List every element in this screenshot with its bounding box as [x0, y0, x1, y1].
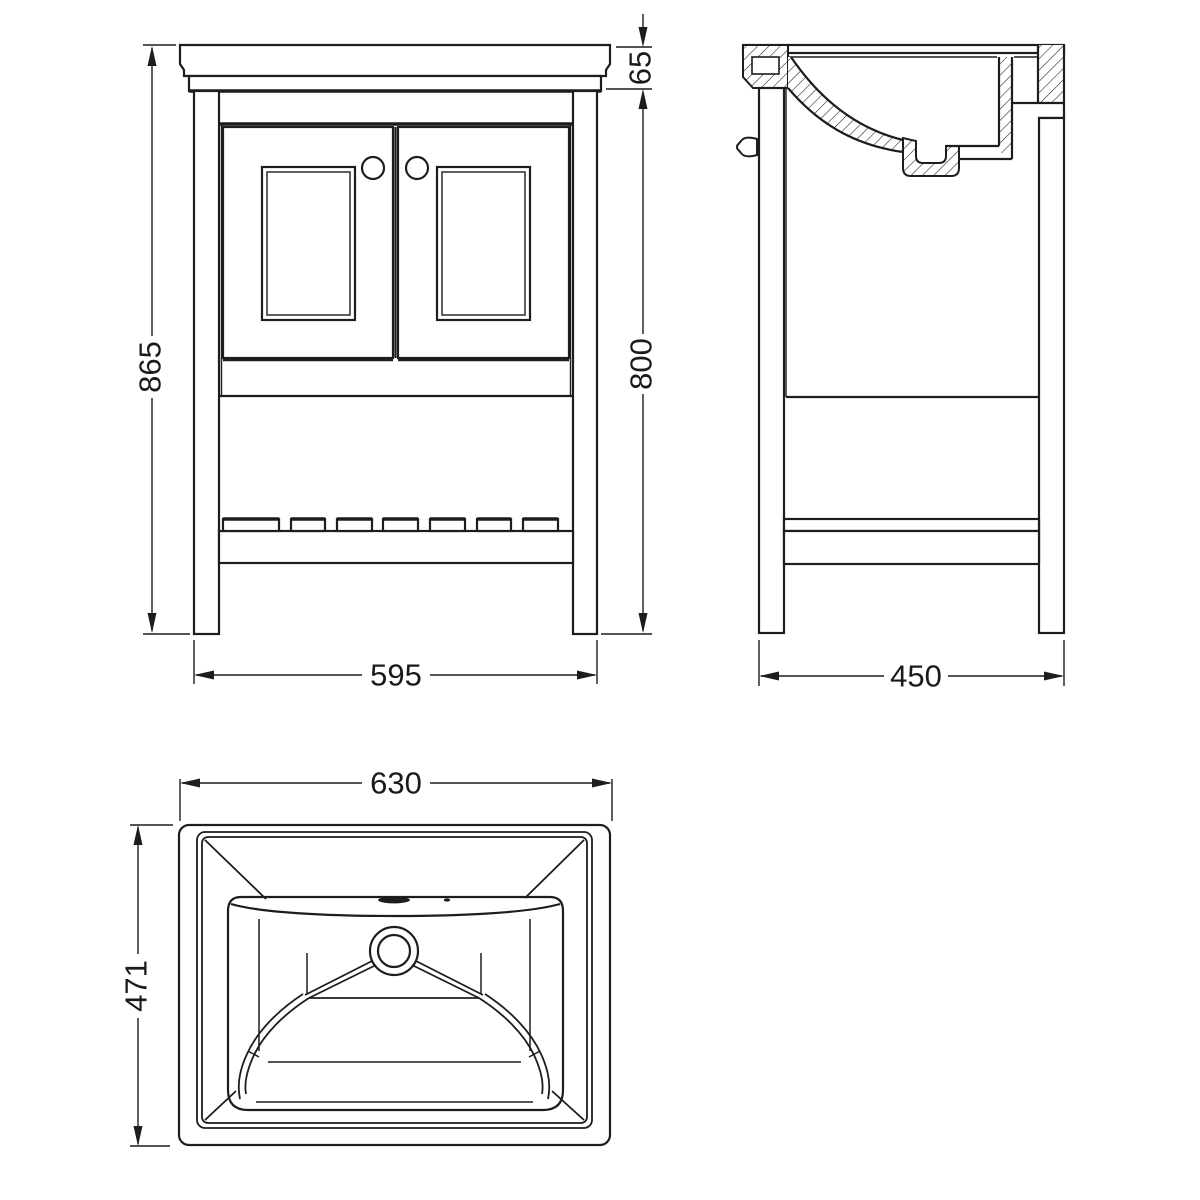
shelf-rail — [219, 531, 573, 563]
dim-label-865: 865 — [133, 341, 168, 393]
rim-marking-dot — [444, 898, 450, 901]
dim-label-471: 471 — [119, 960, 154, 1012]
arrowhead-left — [194, 671, 214, 680]
right-door-knob — [406, 157, 428, 179]
overflow-channel-section — [999, 57, 1012, 153]
side-back-leg — [1039, 118, 1064, 633]
side-shelf-slat — [784, 519, 1039, 531]
dim-label-630: 630 — [370, 766, 422, 801]
front-left-leg — [194, 91, 219, 634]
dim-total-height-865: 865 — [133, 45, 191, 634]
arrowhead-left — [759, 672, 779, 681]
basin-plan-view: 630 471 — [119, 766, 613, 1147]
dim-carcass-height-800: 800 — [601, 108, 659, 634]
dim-label-65: 65 — [623, 51, 658, 85]
front-elevation-view: 865 65 800 595 — [133, 14, 659, 693]
vanity-technical-drawing: 865 65 800 595 — [0, 0, 1200, 1200]
bowl-wall-section — [788, 57, 903, 152]
arrowhead-down — [148, 613, 157, 633]
overflow-slot — [378, 897, 410, 904]
dim-plan-depth-471: 471 — [119, 825, 174, 1146]
bowl-outline — [228, 897, 563, 1110]
arrowhead-up — [639, 89, 648, 109]
dim-label-450: 450 — [890, 659, 942, 694]
side-front-leg — [759, 88, 784, 633]
arrowhead-up — [148, 46, 157, 66]
dim-label-800: 800 — [624, 338, 659, 390]
drain-wall-section — [903, 138, 959, 176]
arrowhead-right — [577, 671, 597, 680]
worktop-slab — [180, 45, 610, 76]
side-section-view: 450 — [737, 45, 1064, 694]
arrowhead-down — [134, 1126, 143, 1146]
arrowhead-down — [639, 613, 648, 633]
side-shelf-rail — [784, 531, 1039, 564]
worktop-lip — [189, 76, 601, 91]
tap-hole-inner — [378, 935, 410, 967]
basin-top-slab — [743, 45, 1064, 53]
dim-label-595: 595 — [370, 658, 422, 693]
rim-corner-diagonals — [205, 840, 584, 1120]
dim-plan-width-630: 630 — [180, 766, 612, 822]
technical-drawing-page: 865 65 800 595 — [0, 0, 1200, 1200]
dim-worktop-height-65: 65 — [606, 14, 658, 109]
bowl-rim-front-edge — [231, 904, 560, 916]
arrowhead-left — [180, 779, 200, 788]
side-door-knob — [737, 138, 757, 157]
left-door-knob — [362, 157, 384, 179]
rear-rim-section — [1038, 45, 1064, 103]
basin-outer-edge — [179, 825, 610, 1145]
shelf-slats — [223, 519, 558, 531]
rim-fixing-notch — [752, 57, 779, 74]
front-right-leg — [573, 91, 597, 634]
dim-side-depth-450: 450 — [759, 640, 1064, 694]
arrowhead-right — [592, 779, 612, 788]
bowl-slope-curves — [239, 994, 549, 1102]
basin-rim-line-outer — [197, 832, 592, 1128]
arrowhead-down — [639, 27, 648, 47]
arrowhead-up — [134, 825, 143, 845]
dim-front-width-595: 595 — [194, 640, 597, 693]
bowl-wall-edges — [259, 919, 530, 1051]
arrowhead-right — [1044, 672, 1064, 681]
